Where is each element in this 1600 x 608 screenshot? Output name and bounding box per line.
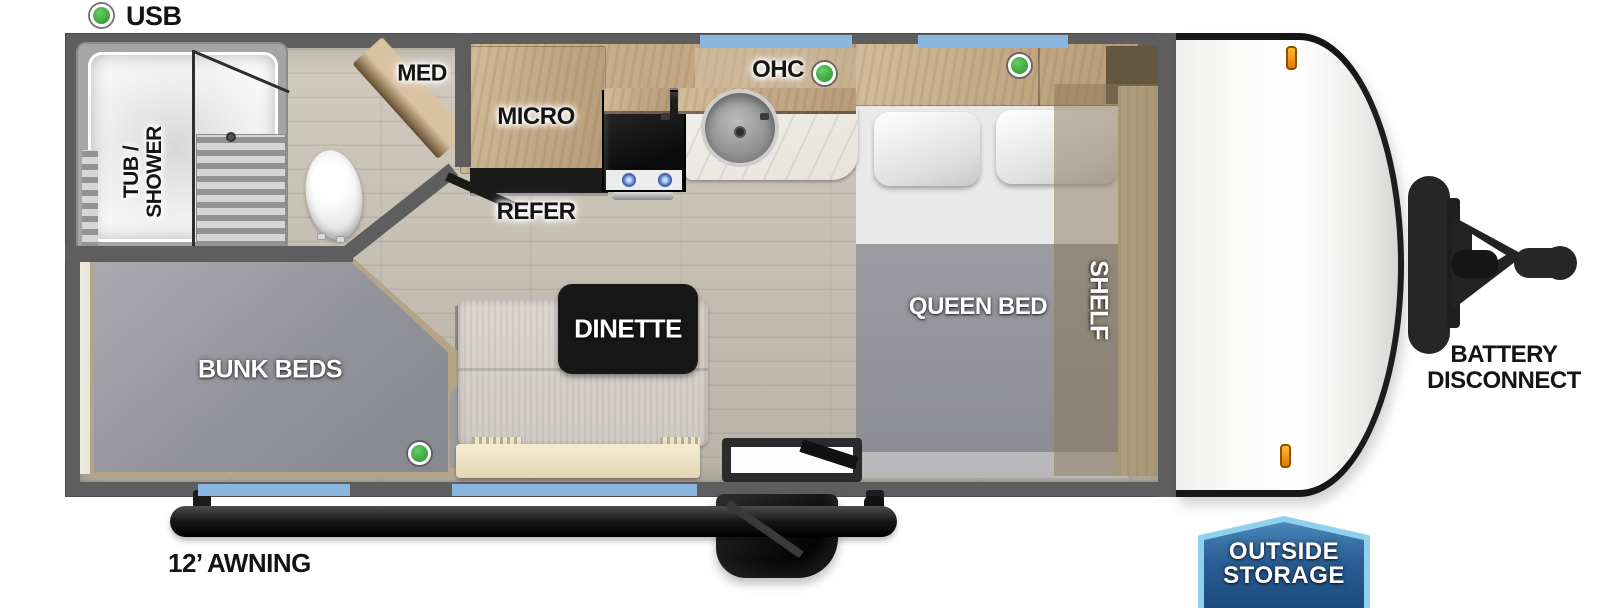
awning-label: 12’ AWNING	[168, 548, 311, 579]
battery-disconnect-line1: BATTERY	[1408, 342, 1600, 368]
marker-light-icon	[1286, 46, 1297, 70]
battery-disconnect-label: BATTERY DISCONNECT	[1408, 342, 1600, 394]
usb-indicator-icon	[1008, 54, 1031, 77]
shelf-label: SHELF	[1084, 260, 1113, 339]
oven-handle	[612, 192, 674, 200]
bathroom-wall	[65, 246, 353, 262]
usb-indicator-icon	[90, 4, 113, 27]
window-bottom-2	[452, 484, 697, 496]
tub-drain-icon	[226, 132, 236, 142]
cabinet-knob-icon	[760, 113, 769, 120]
burner-icon	[622, 173, 636, 187]
shower-slat-mat	[196, 134, 286, 248]
window-top-2	[918, 35, 1068, 48]
tub-shower-label: TUB / SHOWER	[120, 126, 166, 218]
tub-shower-label-line1: TUB /	[120, 126, 143, 218]
bunk-beds-label: BUNK BEDS	[198, 356, 342, 385]
front-cap	[1176, 33, 1404, 497]
floorplan-canvas: USB TUB / SHOWER MED MICRO REFER OHC	[0, 0, 1600, 608]
dinette-table	[456, 444, 700, 478]
refer-label: REFER	[497, 198, 576, 226]
pillow	[874, 112, 980, 186]
sink-drain-icon	[734, 126, 746, 138]
micro-label: MICRO	[497, 103, 575, 131]
outside-storage-line2: STORAGE	[1198, 564, 1370, 588]
usb-legend-label: USB	[126, 1, 182, 32]
battery-disconnect-line2: DISCONNECT	[1408, 368, 1600, 394]
shower-glass-panel	[192, 50, 195, 250]
window-top-1	[700, 35, 852, 48]
burner-icon	[658, 173, 672, 187]
dinette-label: DINETTE	[574, 314, 682, 345]
cabinet-knob-icon	[661, 113, 670, 120]
marker-light-icon	[1280, 444, 1291, 468]
tub-shower-label-line2: SHOWER	[143, 126, 166, 218]
hitch-icon	[1394, 156, 1584, 360]
med-label: MED	[397, 60, 447, 87]
outside-storage-label: OUTSIDE STORAGE	[1198, 540, 1370, 588]
kitchen-partition-wall	[455, 33, 471, 167]
toilet-hinge	[336, 236, 345, 243]
tub-slat-mat-small	[82, 150, 98, 248]
usb-indicator-icon	[408, 442, 431, 465]
outside-storage-line1: OUTSIDE	[1198, 540, 1370, 564]
ohc-label: OHC	[752, 56, 804, 84]
toilet-hinge	[317, 233, 326, 240]
outside-storage-badge: OUTSIDE STORAGE	[1198, 516, 1370, 608]
cabinet-divider	[1038, 46, 1040, 106]
window-bottom-1	[198, 484, 350, 496]
awning-tube	[170, 506, 897, 537]
usb-indicator-icon	[813, 62, 836, 85]
queen-bed-label: QUEEN BED	[909, 293, 1047, 321]
counter-front-edge	[604, 88, 670, 114]
